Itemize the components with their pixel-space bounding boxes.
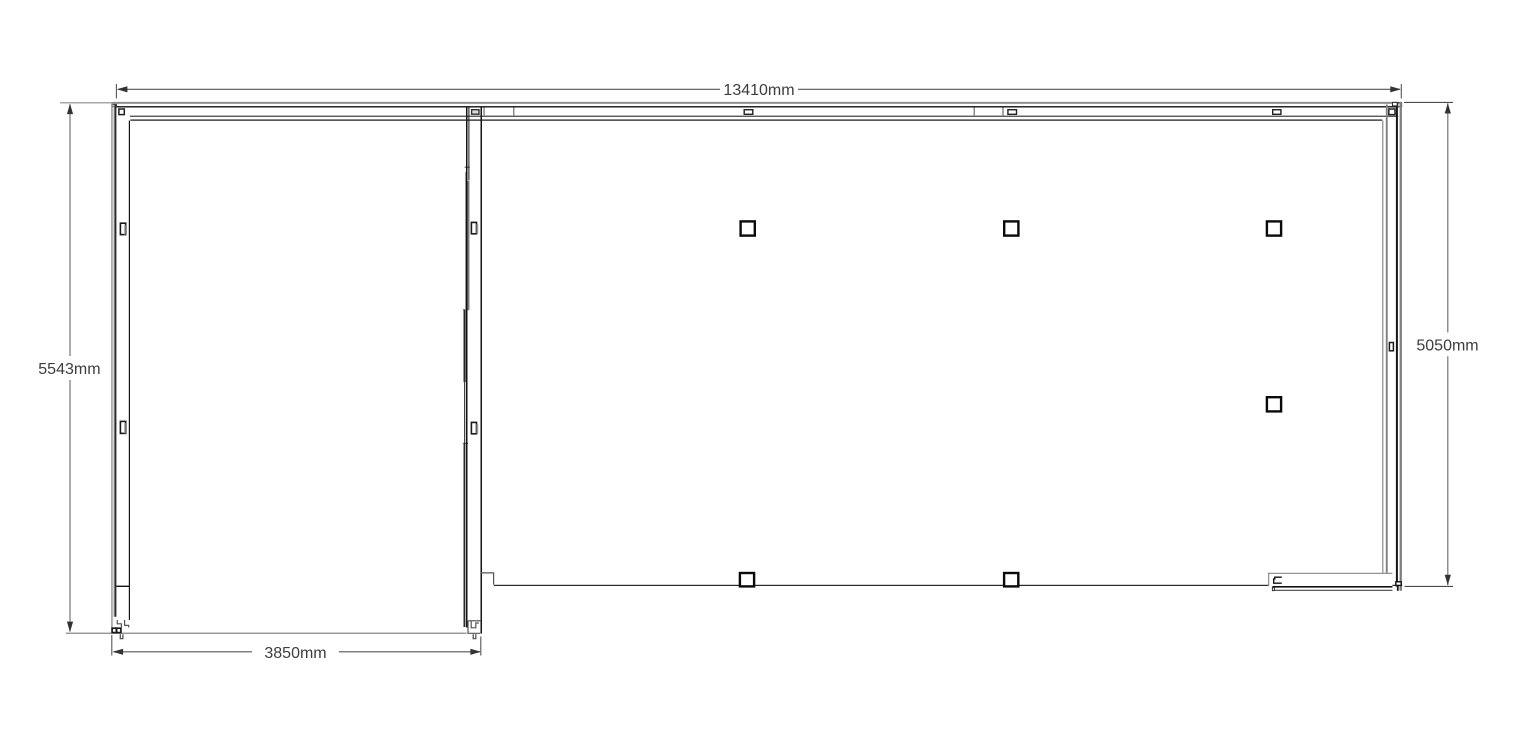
svg-text:13410mm: 13410mm xyxy=(723,82,794,99)
svg-text:5543mm: 5543mm xyxy=(38,361,100,378)
svg-text:5050mm: 5050mm xyxy=(1416,337,1478,354)
svg-text:3850mm: 3850mm xyxy=(264,645,326,662)
